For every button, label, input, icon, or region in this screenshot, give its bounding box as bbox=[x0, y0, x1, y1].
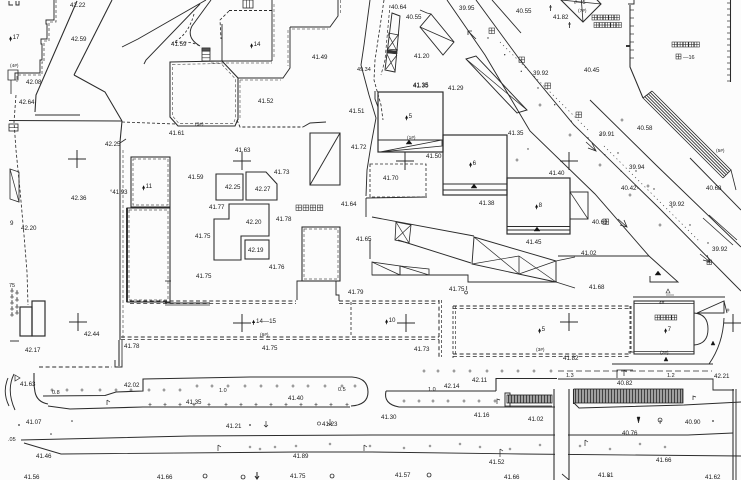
svg-text:41.59: 41.59 bbox=[188, 174, 204, 181]
svg-text:40.64: 40.64 bbox=[391, 4, 407, 11]
svg-text:1.0: 1.0 bbox=[428, 387, 436, 393]
svg-text:41.38: 41.38 bbox=[479, 200, 495, 207]
svg-text:0.5: 0.5 bbox=[338, 387, 346, 393]
svg-text:(6#): (6#) bbox=[260, 332, 269, 338]
svg-text:4#: 4# bbox=[659, 300, 665, 306]
svg-text:—16: —16 bbox=[683, 55, 695, 61]
svg-text:.05: .05 bbox=[8, 437, 16, 443]
svg-text:41.35: 41.35 bbox=[413, 83, 429, 90]
svg-text:41.79: 41.79 bbox=[348, 289, 364, 296]
svg-text:(3#): (3#) bbox=[536, 347, 545, 353]
svg-text:(4#): (4#) bbox=[10, 63, 19, 69]
svg-text:41.52: 41.52 bbox=[258, 98, 274, 105]
svg-text:41.81: 41.81 bbox=[598, 472, 614, 479]
svg-text:(5#): (5#) bbox=[716, 148, 725, 154]
svg-text:41.78: 41.78 bbox=[124, 343, 140, 350]
svg-text:42.17: 42.17 bbox=[25, 347, 41, 354]
svg-text:41.73: 41.73 bbox=[414, 346, 430, 353]
svg-text:41.20: 41.20 bbox=[414, 53, 430, 60]
svg-text:(1#): (1#) bbox=[407, 135, 416, 141]
svg-text:42.59: 42.59 bbox=[71, 36, 87, 43]
svg-text:41.57: 41.57 bbox=[395, 472, 411, 479]
svg-text:5: 5 bbox=[409, 113, 413, 120]
svg-text:10: 10 bbox=[389, 317, 396, 324]
svg-text:41.16: 41.16 bbox=[474, 412, 490, 419]
svg-text:41.73: 41.73 bbox=[274, 169, 290, 176]
svg-text:14: 14 bbox=[254, 41, 261, 48]
svg-text:°41.93: °41.93 bbox=[110, 190, 128, 196]
svg-text:42.36: 42.36 bbox=[71, 195, 87, 202]
svg-text:5: 5 bbox=[542, 326, 546, 333]
svg-text:41.76: 41.76 bbox=[269, 264, 285, 271]
svg-text:39.91: 39.91 bbox=[599, 131, 615, 138]
svg-text:40.68: 40.68 bbox=[706, 185, 722, 192]
svg-text:40.45: 40.45 bbox=[584, 67, 600, 74]
svg-text:40.42: 40.42 bbox=[621, 185, 637, 192]
svg-text:41.21: 41.21 bbox=[226, 423, 242, 430]
svg-text:39.92: 39.92 bbox=[533, 70, 549, 77]
svg-text:41.45: 41.45 bbox=[526, 239, 542, 246]
svg-text:41.72: 41.72 bbox=[351, 144, 367, 151]
svg-text:41.35: 41.35 bbox=[508, 130, 524, 137]
svg-text:17: 17 bbox=[13, 34, 20, 41]
svg-text:40.63: 40.63 bbox=[592, 219, 608, 226]
svg-text:11: 11 bbox=[146, 183, 153, 190]
svg-text:42.25: 42.25 bbox=[225, 184, 241, 191]
svg-text:41.75: 41.75 bbox=[196, 273, 212, 280]
svg-text:41.07: 41.07 bbox=[26, 419, 42, 426]
svg-text:42.19: 42.19 bbox=[248, 247, 264, 254]
svg-text:1.3: 1.3 bbox=[566, 373, 574, 379]
svg-text:41.82: 41.82 bbox=[563, 355, 579, 362]
svg-text:39.92: 39.92 bbox=[669, 201, 685, 208]
svg-text:42.20: 42.20 bbox=[246, 219, 262, 226]
svg-text:41.63: 41.63 bbox=[20, 381, 36, 388]
svg-text:41.77: 41.77 bbox=[209, 204, 225, 211]
svg-text:9: 9 bbox=[10, 220, 14, 227]
svg-text:40.76: 40.76 bbox=[622, 430, 638, 437]
svg-text:42.14: 42.14 bbox=[444, 383, 460, 390]
svg-text:39.94: 39.94 bbox=[629, 164, 645, 171]
svg-text:41.66: 41.66 bbox=[504, 474, 520, 480]
svg-text:41.40: 41.40 bbox=[549, 170, 565, 177]
svg-text:41.46: 41.46 bbox=[36, 453, 52, 460]
svg-text:42.21: 42.21 bbox=[714, 373, 730, 380]
svg-text:(2#): (2#) bbox=[660, 350, 669, 356]
svg-text:1.0: 1.0 bbox=[219, 388, 227, 394]
svg-text:14—15: 14—15 bbox=[256, 318, 277, 325]
svg-text:41.66: 41.66 bbox=[157, 474, 173, 480]
svg-text:40.90: 40.90 bbox=[685, 419, 701, 426]
svg-text:39.92: 39.92 bbox=[712, 246, 728, 253]
svg-text:41.52: 41.52 bbox=[489, 459, 505, 466]
svg-text:41.40: 41.40 bbox=[288, 395, 304, 402]
svg-text:41.51: 41.51 bbox=[349, 108, 365, 115]
svg-text:42.11: 42.11 bbox=[472, 377, 488, 384]
svg-text:41.29: 41.29 bbox=[448, 85, 464, 92]
svg-text:41.66: 41.66 bbox=[656, 457, 672, 464]
svg-text:42.02: 42.02 bbox=[124, 382, 140, 389]
svg-text:40.55: 40.55 bbox=[516, 8, 532, 15]
svg-text:41.82: 41.82 bbox=[553, 14, 569, 21]
svg-text:41.64: 41.64 bbox=[341, 201, 357, 208]
svg-text:41.63: 41.63 bbox=[235, 147, 251, 154]
svg-text:1.2: 1.2 bbox=[667, 373, 675, 379]
svg-text:41.62: 41.62 bbox=[705, 474, 721, 480]
svg-text:42.64: 42.64 bbox=[19, 99, 35, 106]
svg-text:39.95: 39.95 bbox=[459, 5, 475, 12]
svg-text:42.27: 42.27 bbox=[255, 186, 271, 193]
svg-text:41.56: 41.56 bbox=[24, 474, 40, 480]
svg-text:40.82: 40.82 bbox=[617, 380, 633, 387]
svg-text:0.8: 0.8 bbox=[52, 390, 60, 396]
svg-text:6: 6 bbox=[473, 160, 477, 167]
svg-text:41.30: 41.30 bbox=[381, 414, 397, 421]
svg-text:41.70: 41.70 bbox=[383, 175, 399, 182]
svg-text:42.08: 42.08 bbox=[26, 79, 42, 86]
svg-text:41.68: 41.68 bbox=[589, 284, 605, 291]
svg-text:42.20: 42.20 bbox=[21, 225, 37, 232]
svg-text:41.89: 41.89 bbox=[293, 453, 309, 460]
svg-text:#—5: #—5 bbox=[574, 0, 586, 6]
svg-text:41.02: 41.02 bbox=[581, 250, 597, 257]
svg-text:7: 7 bbox=[668, 326, 672, 333]
svg-text:41.50: 41.50 bbox=[426, 153, 442, 160]
svg-text:49.34: 49.34 bbox=[357, 67, 371, 73]
svg-text:40.55: 40.55 bbox=[406, 14, 422, 21]
svg-text:41.75: 41.75 bbox=[449, 286, 465, 293]
svg-text:8: 8 bbox=[539, 202, 543, 209]
svg-text:41.78: 41.78 bbox=[276, 216, 292, 223]
svg-text:(3#): (3#) bbox=[195, 122, 204, 128]
svg-text:41.75: 41.75 bbox=[290, 473, 306, 480]
svg-text:41.49: 41.49 bbox=[312, 54, 328, 61]
svg-text:42.44: 42.44 bbox=[84, 331, 100, 338]
svg-text:41.61: 41.61 bbox=[169, 130, 185, 137]
svg-text:41.75: 41.75 bbox=[262, 345, 278, 352]
svg-text:41.75: 41.75 bbox=[195, 233, 211, 240]
svg-text:41.02: 41.02 bbox=[528, 416, 544, 423]
svg-text:(7#): (7#) bbox=[578, 8, 587, 14]
svg-text:41.59: 41.59 bbox=[171, 41, 187, 48]
svg-text:42.25: 42.25 bbox=[105, 141, 121, 148]
svg-text:42.22: 42.22 bbox=[70, 2, 86, 9]
svg-text:40.58: 40.58 bbox=[637, 125, 653, 132]
